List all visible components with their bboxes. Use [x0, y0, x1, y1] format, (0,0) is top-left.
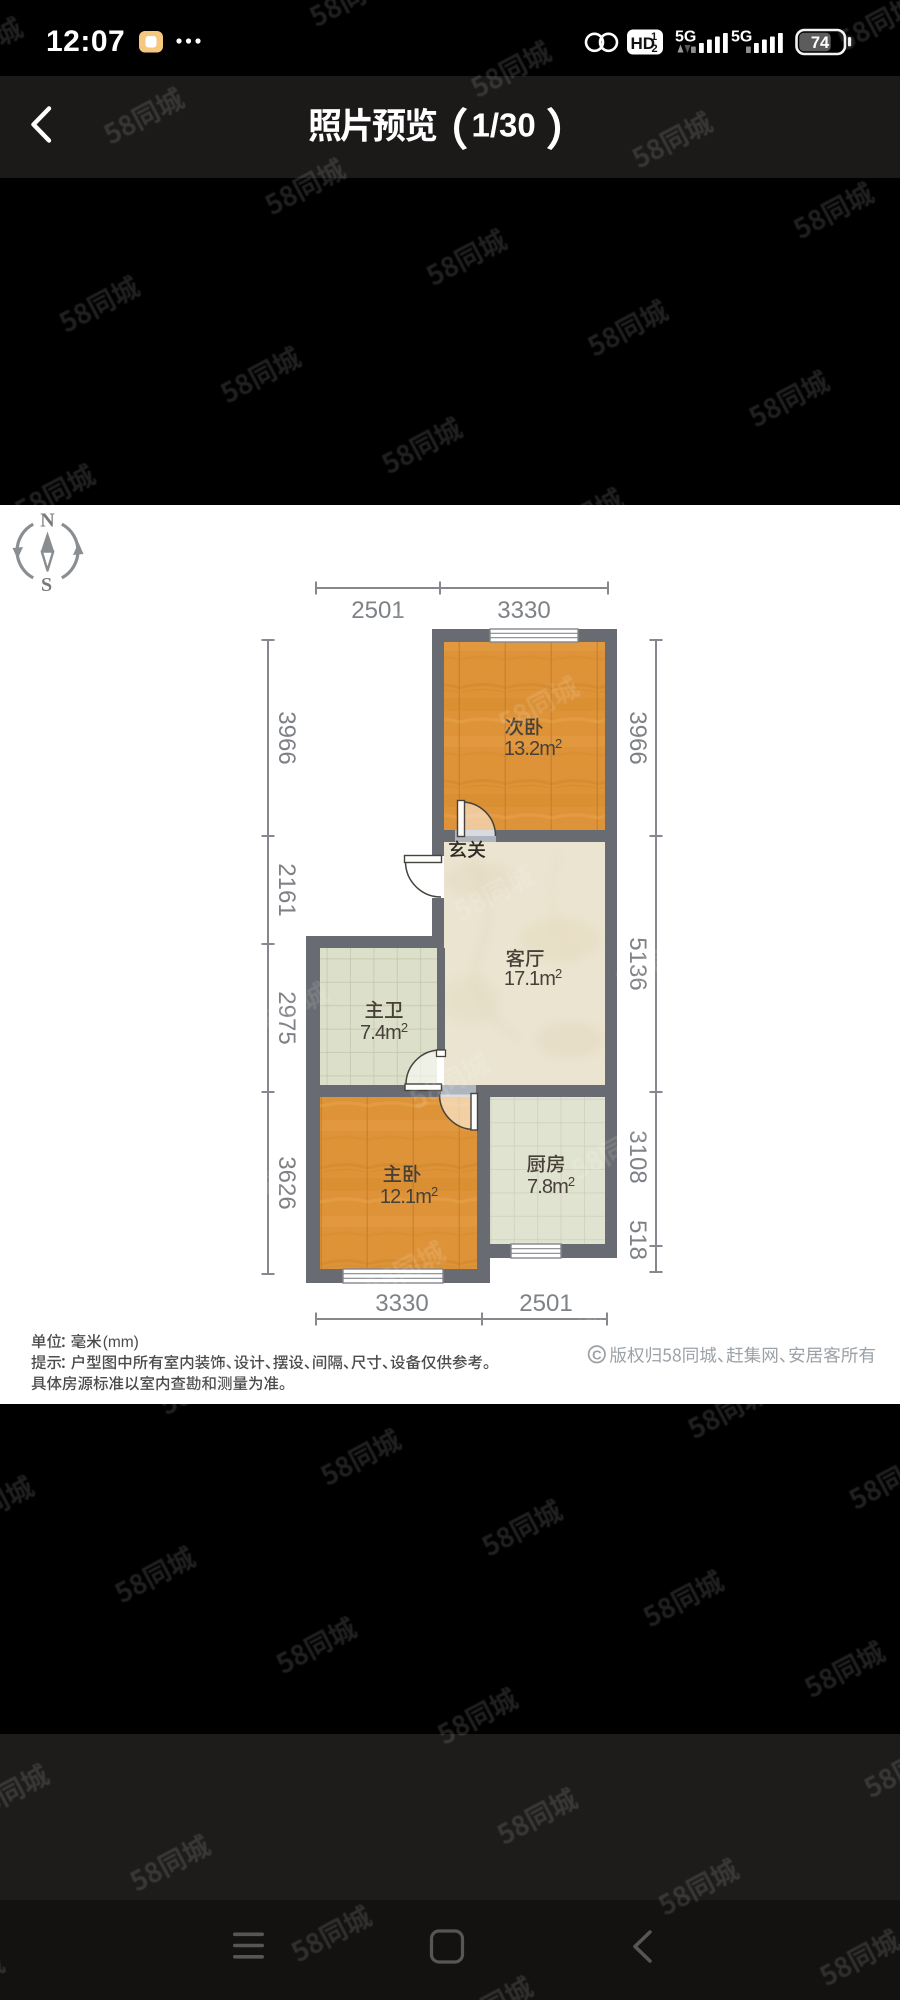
svg-text:12.1m2: 12.1m2	[380, 1184, 438, 1208]
svg-text:17.1m2: 17.1m2	[504, 966, 562, 990]
svg-text:S: S	[41, 574, 52, 596]
svg-text:N: N	[40, 510, 55, 532]
svg-text:3330: 3330	[375, 1290, 428, 1317]
svg-text:7.4m2: 7.4m2	[360, 1020, 408, 1044]
svg-text:1: 1	[651, 31, 657, 43]
svg-text:1/30: 1/30	[472, 107, 536, 144]
svg-text:518: 518	[624, 1220, 651, 1260]
svg-text:13.2m2: 13.2m2	[504, 736, 562, 760]
svg-text:12:07: 12:07	[46, 25, 125, 58]
svg-text:2501: 2501	[351, 597, 404, 624]
svg-text:3966: 3966	[273, 711, 300, 764]
svg-text:3330: 3330	[497, 597, 550, 624]
svg-text:7.8m2: 7.8m2	[527, 1174, 575, 1198]
svg-text:5G: 5G	[675, 29, 696, 46]
svg-text:2501: 2501	[519, 1290, 572, 1317]
svg-text:74: 74	[811, 34, 830, 52]
svg-text:5G: 5G	[731, 29, 752, 46]
svg-text:(mm): (mm)	[103, 1334, 139, 1351]
svg-text:3966: 3966	[624, 711, 651, 764]
svg-text:C: C	[592, 1347, 602, 1362]
svg-text:2: 2	[652, 43, 658, 55]
svg-text:2161: 2161	[273, 863, 300, 916]
